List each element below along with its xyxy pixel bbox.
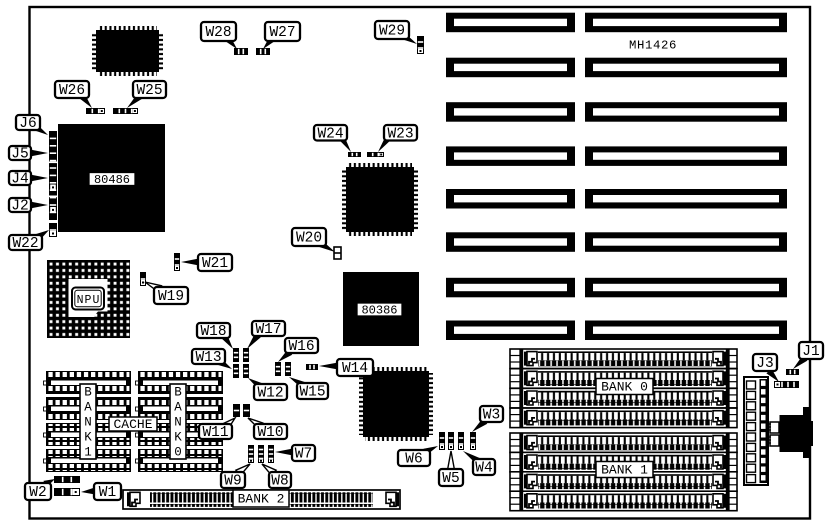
svg-text:W21: W21 xyxy=(202,256,228,272)
svg-text:NPU: NPU xyxy=(77,294,101,307)
svg-text:W1: W1 xyxy=(99,485,116,501)
svg-text:W16: W16 xyxy=(288,339,314,355)
svg-text:BANK 2: BANK 2 xyxy=(238,492,285,507)
svg-text:W23: W23 xyxy=(387,126,413,142)
svg-text:K: K xyxy=(174,431,182,445)
svg-text:J5: J5 xyxy=(11,147,28,163)
svg-text:W13: W13 xyxy=(195,350,221,366)
svg-text:W5: W5 xyxy=(442,471,459,487)
svg-text:W27: W27 xyxy=(269,25,295,41)
svg-text:W22: W22 xyxy=(12,236,38,252)
svg-text:W7: W7 xyxy=(295,447,312,463)
svg-text:0: 0 xyxy=(174,446,182,460)
svg-text:W15: W15 xyxy=(299,385,325,401)
svg-text:A: A xyxy=(174,401,182,415)
svg-text:W25: W25 xyxy=(136,83,162,99)
svg-text:W17: W17 xyxy=(255,322,281,338)
svg-text:J1: J1 xyxy=(802,344,819,360)
svg-text:K: K xyxy=(84,431,92,445)
svg-text:W28: W28 xyxy=(205,25,231,41)
svg-text:BANK 0: BANK 0 xyxy=(601,380,648,395)
svg-text:W3: W3 xyxy=(483,408,500,424)
svg-text:N: N xyxy=(174,416,182,430)
svg-text:J3: J3 xyxy=(756,356,773,372)
svg-text:W20: W20 xyxy=(296,231,322,247)
svg-text:80386: 80386 xyxy=(361,304,397,318)
svg-text:W18: W18 xyxy=(200,324,226,340)
svg-text:B: B xyxy=(174,386,182,400)
svg-text:J2: J2 xyxy=(11,199,28,215)
svg-text:B: B xyxy=(84,386,92,400)
svg-text:W19: W19 xyxy=(158,289,184,305)
svg-text:A: A xyxy=(84,401,92,415)
svg-text:W2: W2 xyxy=(29,485,46,501)
svg-text:BANK 1: BANK 1 xyxy=(601,463,648,478)
svg-text:W29: W29 xyxy=(379,24,405,40)
svg-text:W12: W12 xyxy=(257,386,283,402)
svg-text:J6: J6 xyxy=(19,116,36,132)
svg-text:W9: W9 xyxy=(224,474,241,490)
svg-text:W14: W14 xyxy=(342,361,368,377)
svg-text:W10: W10 xyxy=(257,425,283,441)
svg-text:W8: W8 xyxy=(271,474,288,490)
svg-text:W4: W4 xyxy=(475,461,492,477)
svg-text:W26: W26 xyxy=(59,83,85,99)
svg-text:MH1426: MH1426 xyxy=(629,38,677,52)
svg-text:N: N xyxy=(84,416,92,430)
svg-text:W24: W24 xyxy=(317,126,343,142)
svg-text:J4: J4 xyxy=(11,172,28,188)
svg-text:CACHE: CACHE xyxy=(113,417,152,432)
svg-text:80486: 80486 xyxy=(94,173,130,187)
svg-text:W11: W11 xyxy=(202,425,228,441)
svg-text:1: 1 xyxy=(84,446,92,460)
svg-text:W6: W6 xyxy=(405,452,422,468)
